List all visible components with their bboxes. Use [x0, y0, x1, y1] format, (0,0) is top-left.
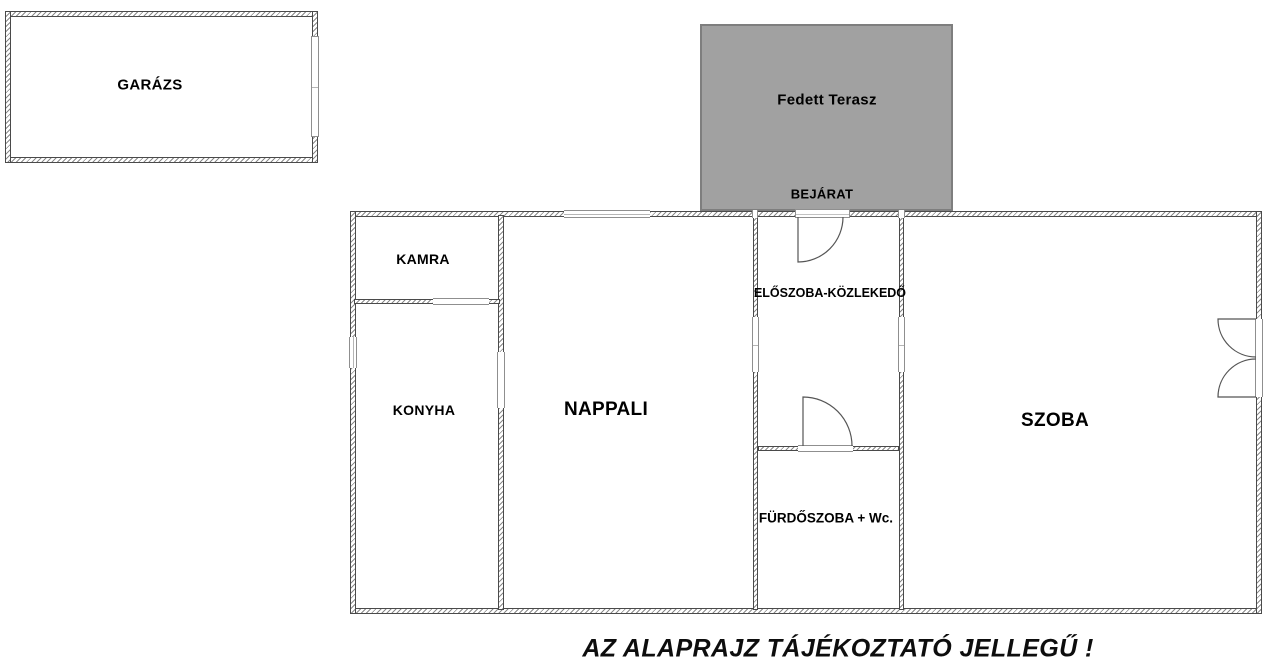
room-label: SZOBA	[1021, 410, 1089, 432]
hallway-room-opening	[898, 317, 905, 372]
entrance-sill	[795, 209, 850, 218]
living-window-top	[564, 210, 650, 218]
kitchen-window-glass	[353, 337, 354, 368]
kitchen-living-opening	[497, 352, 505, 408]
room-double-door-lower-swing	[1218, 359, 1256, 397]
bathroom-door-opening	[798, 445, 853, 452]
wall-hallway-room	[899, 215, 904, 610]
house-wall-left	[350, 211, 356, 614]
floorplan-canvas: GARÁZS Fedett Terasz BEJÁRAT KAMRA ELŐSZ…	[0, 0, 1280, 668]
living-hallway-opening	[752, 317, 759, 372]
bathroom-door-swing	[803, 397, 852, 446]
topwall-junction-right	[898, 210, 905, 218]
terrace-area	[700, 24, 953, 211]
pantry-doorway	[433, 298, 489, 305]
kitchen-window	[349, 337, 357, 368]
entrance-label: BEJÁRAT	[791, 187, 854, 202]
door-swings-layer	[0, 0, 1280, 668]
topwall-junction-left	[752, 210, 758, 218]
entrance-door-swing	[798, 217, 843, 262]
hallway-room-threshold	[899, 345, 904, 346]
pantry-label: KAMRA	[396, 251, 450, 267]
hallway-label: ELŐSZOBA-KÖZLEKEDŐ	[754, 286, 906, 300]
terrace-label: Fedett Terasz	[777, 92, 876, 109]
living-label: NAPPALI	[564, 399, 648, 421]
garage-wall-left	[5, 11, 11, 163]
caption: AZ ALAPRAJZ TÁJÉKOZTATÓ JELLEGŰ !	[582, 635, 1093, 664]
living-window-glass	[564, 214, 650, 215]
room-double-door-upper-swing	[1218, 319, 1256, 357]
garage-window-divider	[312, 87, 318, 88]
living-hallway-threshold	[753, 345, 758, 346]
wall-pantry-living	[498, 215, 504, 610]
entrance-sill-line	[796, 214, 849, 215]
garage-label: GARÁZS	[117, 77, 182, 94]
garage-wall-top	[5, 11, 318, 17]
wall-living-hallway	[753, 215, 758, 610]
garage-wall-bottom	[5, 157, 318, 163]
garage-window	[311, 36, 319, 137]
kitchen-label: KONYHA	[393, 402, 455, 418]
house-wall-bottom	[350, 608, 1262, 614]
house-wall-right	[1256, 211, 1262, 614]
room-door-opening	[1255, 319, 1263, 397]
bathroom-label: FÜRDŐSZOBA + Wc.	[759, 511, 893, 526]
